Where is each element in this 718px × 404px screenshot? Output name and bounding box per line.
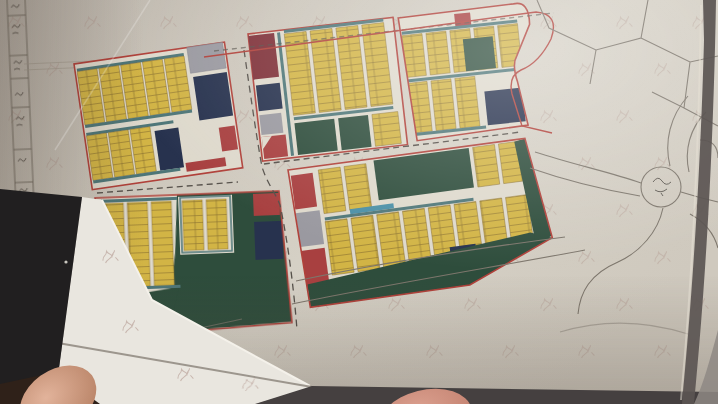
folder-speck — [64, 260, 67, 263]
photo-of-site-plan — [0, 0, 718, 404]
scene — [0, 0, 718, 404]
